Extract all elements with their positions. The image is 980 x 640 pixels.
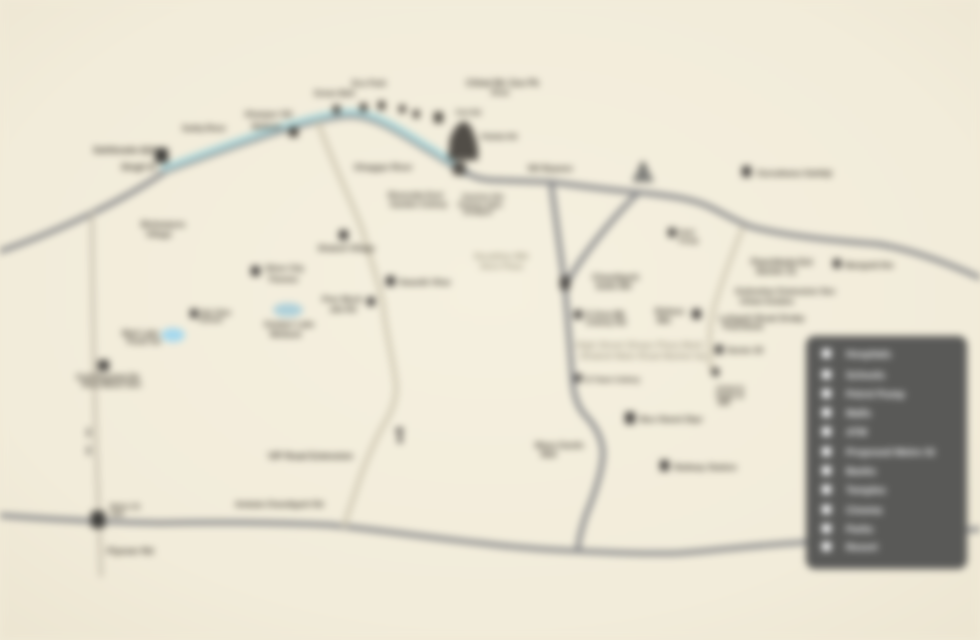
svg-text:Hospitals: Hospitals bbox=[846, 350, 891, 361]
svg-text:Dhakoli Village: Dhakoli Village bbox=[318, 244, 375, 253]
svg-text:Temples: Temples bbox=[846, 486, 886, 497]
svg-text:Banks: Banks bbox=[846, 467, 876, 478]
svg-text:Parks: Parks bbox=[846, 525, 874, 536]
svg-text:Sector 20: Sector 20 bbox=[727, 346, 764, 355]
svg-text:Bishanpura: Bishanpura bbox=[141, 220, 186, 229]
svg-text:Store Plaza: Store Plaza bbox=[480, 262, 524, 271]
svg-text:Ghaggar River: Ghaggar River bbox=[354, 162, 413, 172]
svg-text:Sahibzada Ajit: Sahibzada Ajit bbox=[93, 145, 154, 155]
svg-text:Petrl: Petrl bbox=[679, 230, 695, 237]
svg-text:Flyover Rd: Flyover Rd bbox=[107, 546, 154, 556]
svg-text:Bal Vihar: Bal Vihar bbox=[201, 310, 231, 317]
svg-text:Petrol Pump: Petrol Pump bbox=[846, 390, 905, 401]
svg-text:Railway Station: Railway Station bbox=[674, 462, 737, 472]
svg-text:Malls: Malls bbox=[846, 409, 871, 420]
svg-text:Gurudwara Sahibji: Gurudwara Sahibji bbox=[757, 168, 832, 178]
svg-text:Vishal N: Vishal N bbox=[716, 386, 744, 393]
svg-text:Sector 21: Sector 21 bbox=[756, 266, 797, 276]
svg-text:Zirakpur: Zirakpur bbox=[463, 207, 493, 216]
svg-text:Delhi NH: Delhi NH bbox=[596, 281, 631, 291]
svg-text:Panchkula: Panchkula bbox=[723, 322, 764, 331]
svg-text:Resort: Resort bbox=[846, 543, 878, 554]
svg-text:Patiala Rd: Patiala Rd bbox=[481, 132, 518, 141]
svg-text:Fort Rd: Fort Rd bbox=[456, 110, 481, 117]
svg-text:NH Bypass: NH Bypass bbox=[528, 163, 573, 173]
svg-text:Green Belt: Green Belt bbox=[314, 89, 355, 98]
svg-text:Mkt: Mkt bbox=[657, 316, 671, 325]
svg-text:Silver City: Silver City bbox=[265, 264, 305, 273]
svg-text:Urban Estates: Urban Estates bbox=[740, 297, 794, 306]
svg-text:Bus Stand Zkpr: Bus Stand Zkpr bbox=[640, 414, 704, 424]
svg-text:Peer Much: Peer Much bbox=[322, 295, 363, 304]
svg-text:owk: owk bbox=[110, 511, 124, 518]
svg-text:Garden Colony: Garden Colony bbox=[390, 200, 448, 209]
svg-text:Area: Area bbox=[491, 88, 509, 97]
svg-text:B Town Colony: B Town Colony bbox=[586, 375, 641, 384]
svg-text:Colony Rd: Colony Rd bbox=[586, 318, 626, 327]
svg-text:Metro Ch: Metro Ch bbox=[110, 504, 140, 511]
svg-text:Cinema: Cinema bbox=[846, 506, 883, 517]
svg-text:VIP Road Extension: VIP Road Extension bbox=[268, 451, 353, 461]
svg-text:Pond Vw: Pond Vw bbox=[127, 337, 162, 346]
svg-text:Dera Bassi Gen: Dera Bassi Gen bbox=[82, 380, 141, 389]
svg-text:Sutlej River: Sutlej River bbox=[182, 124, 226, 133]
svg-text:ATM: ATM bbox=[846, 428, 867, 439]
svg-text:Khanpur Vill: Khanpur Vill bbox=[245, 110, 292, 119]
svg-text:Chhat Bir Zoo Pk: Chhat Bir Zoo Pk bbox=[466, 78, 540, 88]
svg-text:Gulmohar Extension Sec: Gulmohar Extension Sec bbox=[735, 286, 836, 296]
svg-text:Schools: Schools bbox=[846, 371, 885, 382]
svg-text:Themes: Themes bbox=[268, 275, 299, 284]
svg-text:High Street Shops Plaza Mark: High Street Shops Plaza Mark bbox=[576, 340, 704, 350]
svg-text:Decathlon Mkt: Decathlon Mkt bbox=[474, 252, 529, 261]
svg-text:Nagar M: Nagar M bbox=[716, 393, 744, 400]
svg-text:Proposed Metro St: Proposed Metro St bbox=[846, 448, 936, 459]
svg-text:Village: Village bbox=[146, 230, 172, 239]
svg-text:Pump: Pump bbox=[679, 238, 698, 245]
svg-text:Gazipur Lake: Gazipur Lake bbox=[264, 320, 315, 329]
svg-text:Marigold Hm: Marigold Hm bbox=[845, 261, 893, 270]
svg-text:Riverside Encl: Riverside Encl bbox=[388, 191, 443, 200]
svg-text:Baltana: Baltana bbox=[252, 122, 281, 131]
svg-text:Singh N: Singh N bbox=[121, 162, 155, 172]
svg-text:Baltana: Baltana bbox=[655, 307, 684, 316]
svg-text:Dhakoli Main Road Market Sq: Dhakoli Main Road Market Sq bbox=[580, 351, 706, 361]
svg-text:School: School bbox=[199, 317, 222, 324]
svg-text:Swastik Vihar: Swastik Vihar bbox=[399, 278, 451, 287]
svg-text:Mkt: Mkt bbox=[718, 400, 731, 407]
svg-text:alla Rd: alla Rd bbox=[330, 305, 356, 314]
svg-text:Eco Park: Eco Park bbox=[352, 79, 387, 88]
svg-text:Ambala Chandigarh Rd: Ambala Chandigarh Rd bbox=[235, 500, 324, 509]
svg-text:Wetland: Wetland bbox=[270, 330, 301, 339]
svg-text:Maya Gardn: Maya Gardn bbox=[535, 440, 584, 450]
svg-text:Mall: Mall bbox=[541, 450, 557, 459]
